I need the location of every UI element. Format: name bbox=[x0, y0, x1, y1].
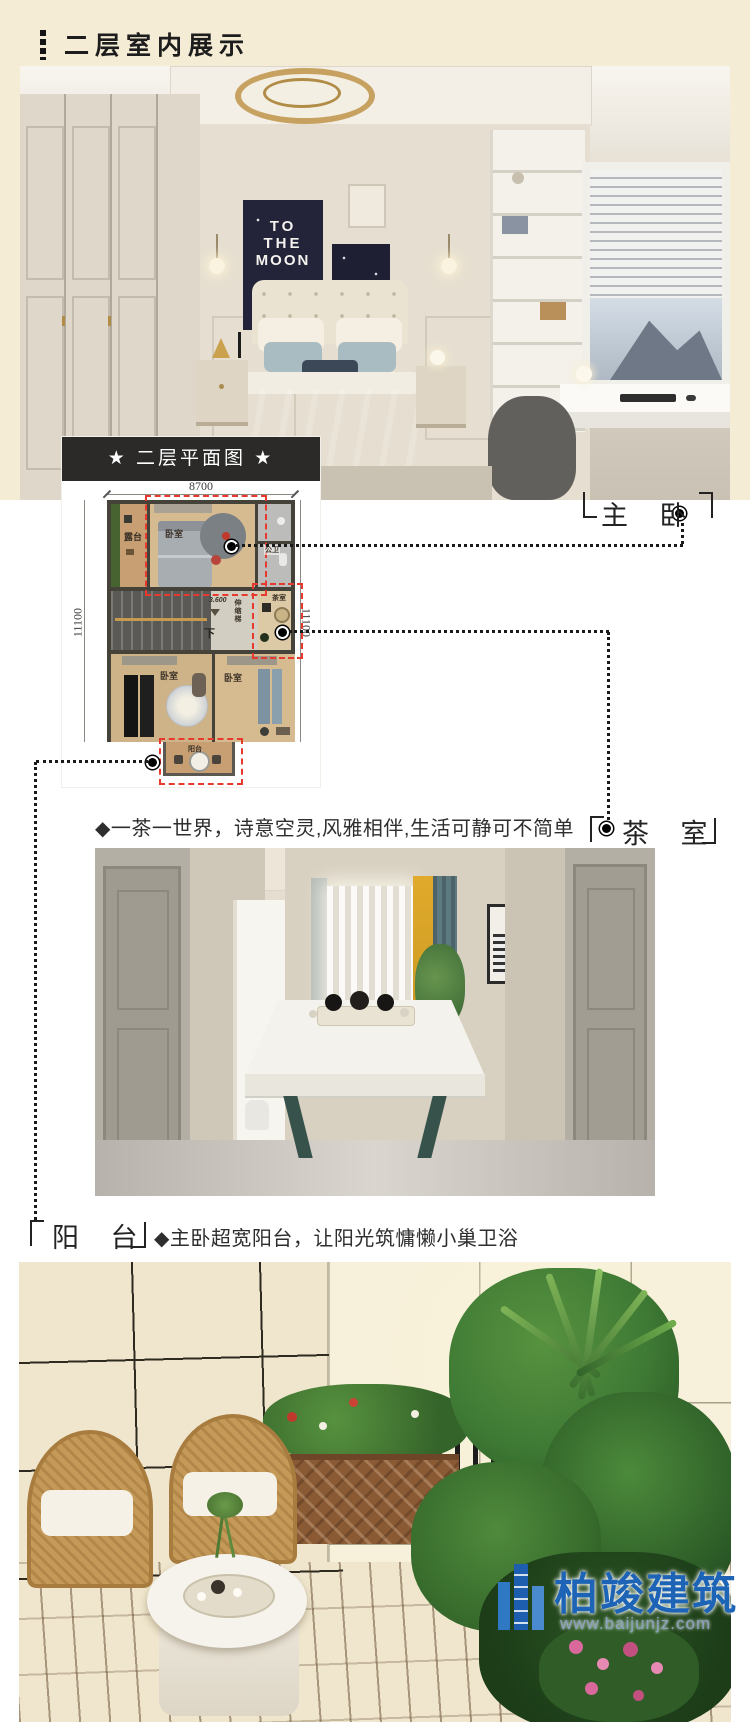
shelf-vase bbox=[512, 172, 524, 184]
plan-bedroom3-desk bbox=[276, 727, 290, 735]
plan-stairs-rail bbox=[115, 618, 207, 621]
table-lamp-globe bbox=[430, 350, 445, 365]
dim-top: 8700 bbox=[107, 479, 295, 494]
plan-label-down: 下 bbox=[204, 625, 215, 641]
small-frame bbox=[348, 184, 386, 228]
balcony-bracket-right bbox=[132, 1222, 146, 1248]
master-connector-h bbox=[236, 544, 683, 547]
plan-tea-dot bbox=[278, 628, 287, 637]
plan-bedroom3-bed bbox=[258, 669, 270, 724]
teapot-icon bbox=[325, 994, 342, 1011]
wardrobe-knob bbox=[62, 316, 65, 326]
floorplan-card[interactable]: ★ 二层平面图 ★ 8700 11100 11100 bbox=[62, 437, 320, 787]
plan-label-ladder: 伸缩梯 bbox=[232, 599, 242, 623]
balcony-bracket-left bbox=[30, 1220, 44, 1246]
planter-flower-red bbox=[349, 1398, 358, 1407]
balcony-connector-h bbox=[36, 760, 148, 763]
flower-pink bbox=[585, 1682, 598, 1695]
plan-terrace-chair bbox=[124, 515, 132, 523]
mouse-icon bbox=[686, 395, 696, 401]
plan-bedroom2-bed bbox=[140, 675, 154, 737]
wall-sconce-left-globe bbox=[209, 258, 225, 274]
plan-master-dot bbox=[227, 542, 236, 551]
candlestick-icon bbox=[238, 332, 241, 358]
rattan-chair-left-cushion bbox=[41, 1490, 133, 1536]
nightstand-right bbox=[416, 366, 466, 428]
flower-pink bbox=[597, 1658, 609, 1670]
wardrobe-panel bbox=[72, 126, 110, 280]
balcony-plants bbox=[419, 1262, 731, 1722]
plan-bedroom2-bed bbox=[124, 675, 138, 737]
tea-left-door-panel bbox=[117, 890, 169, 1010]
plan-terrace-plants bbox=[111, 504, 120, 587]
tea-bracket-right bbox=[702, 818, 716, 844]
balcony-teapot-icon bbox=[211, 1580, 225, 1594]
tea-connector-v bbox=[607, 632, 610, 820]
dim-left: 11100 bbox=[71, 593, 86, 653]
wardrobe-knob bbox=[108, 316, 111, 326]
page: 二层室内展示 TO THE MOON bbox=[0, 0, 750, 1722]
tea-bracket-left bbox=[590, 816, 604, 842]
gold-pyramid-icon bbox=[212, 338, 230, 358]
window-blinds bbox=[590, 170, 722, 298]
logo-bar bbox=[532, 1586, 544, 1630]
page-title: 二层室内展示 bbox=[64, 26, 250, 62]
callout-master: 主 卧 bbox=[601, 494, 699, 533]
balcony-teacup-icon bbox=[233, 1588, 242, 1597]
wardrobe-panel bbox=[118, 126, 156, 280]
header-dash-icon bbox=[40, 30, 46, 60]
watermark-brand: 柏竣建筑 bbox=[554, 1558, 738, 1622]
plan-bedroom3-bed bbox=[272, 669, 282, 724]
caption-balcony: ◆主卧超宽阳台，让阳光筑慵懒小巢卫浴 bbox=[154, 1222, 518, 1251]
watermark-logo-icon bbox=[492, 1554, 548, 1630]
flower-pink bbox=[633, 1690, 644, 1701]
tea-floor bbox=[95, 1140, 655, 1196]
plan-label-terrace: 露台 bbox=[124, 530, 142, 543]
teacup-icon bbox=[309, 1010, 317, 1018]
tea-right-door-panel bbox=[587, 888, 635, 1010]
flower-pink bbox=[651, 1662, 663, 1674]
master-bracket-left bbox=[583, 492, 597, 518]
plan-label-tea: 茶室 bbox=[272, 593, 286, 603]
wardrobe-panel bbox=[26, 126, 64, 280]
plan-label-master: 卧室 bbox=[165, 527, 183, 540]
floorplan-title: ★ 二层平面图 ★ bbox=[62, 437, 320, 481]
shelf-books bbox=[540, 302, 566, 320]
nightstand-left-knob bbox=[219, 384, 224, 389]
keyboard-icon bbox=[620, 394, 676, 402]
plan-label-bedroom2: 卧室 bbox=[160, 669, 178, 682]
plan-bath-fixture bbox=[277, 517, 285, 525]
plan-bedroom2-sofa bbox=[192, 673, 206, 697]
wall-sconce-right-globe bbox=[441, 258, 457, 274]
planter-flower-white bbox=[411, 1410, 419, 1418]
plan-bedroom3-chair bbox=[260, 727, 269, 736]
tea-bathroom-toilet bbox=[245, 1100, 269, 1130]
balcony-connector-v bbox=[34, 762, 37, 1220]
plan-bath-fixture bbox=[279, 553, 287, 566]
poster-line: MOON bbox=[243, 252, 323, 269]
office-chair bbox=[488, 396, 576, 500]
bedroom-ceiling-recess bbox=[170, 66, 592, 126]
plan-label-bedroom3: 卧室 bbox=[224, 671, 242, 684]
photo-tea-room[interactable] bbox=[95, 848, 655, 1196]
balcony-teacup-icon bbox=[197, 1592, 206, 1601]
desk-front bbox=[560, 412, 730, 428]
table-plant-leaves bbox=[207, 1492, 243, 1518]
teapot-icon bbox=[350, 991, 369, 1010]
master-bracket-right bbox=[699, 492, 713, 518]
section-header: 二层室内展示 bbox=[40, 24, 440, 64]
poster-line: THE bbox=[243, 235, 323, 252]
tea-table-front bbox=[245, 1074, 485, 1098]
plan-balcony-dot bbox=[148, 758, 157, 767]
logo-bar bbox=[514, 1564, 528, 1630]
desk-lamp-globe bbox=[576, 366, 592, 382]
shelf-books bbox=[502, 216, 528, 234]
plan-terrace-chair bbox=[126, 549, 134, 555]
teapot-icon bbox=[377, 994, 394, 1011]
watermark-site: www.baijunjz.com bbox=[560, 1614, 711, 1634]
plan-level-symbol bbox=[210, 609, 220, 616]
plan-label-level: 3.600 bbox=[209, 597, 227, 604]
planter-flower-red bbox=[287, 1412, 297, 1422]
watermark: 柏竣建筑 www.baijunjz.com bbox=[492, 1548, 742, 1648]
planter-flower-white bbox=[319, 1422, 327, 1430]
chandelier-inner-ring bbox=[263, 78, 341, 108]
poster-line: TO bbox=[243, 218, 323, 235]
logo-bar bbox=[498, 1582, 510, 1630]
plan-label-balcony: 阳台 bbox=[188, 744, 202, 754]
wardrobe-panel bbox=[26, 296, 64, 470]
teacup-icon bbox=[400, 1008, 409, 1017]
tea-connector-h bbox=[289, 630, 609, 633]
photo-master-bedroom[interactable]: TO THE MOON bbox=[20, 66, 730, 500]
nightstand-left bbox=[196, 360, 248, 426]
photo-balcony[interactable] bbox=[19, 1262, 731, 1722]
caption-tea: ◆一茶一世界，诗意空灵,风雅相伴,生活可静可不简单 bbox=[95, 812, 574, 841]
plan-bedroom2-closet bbox=[122, 656, 177, 665]
